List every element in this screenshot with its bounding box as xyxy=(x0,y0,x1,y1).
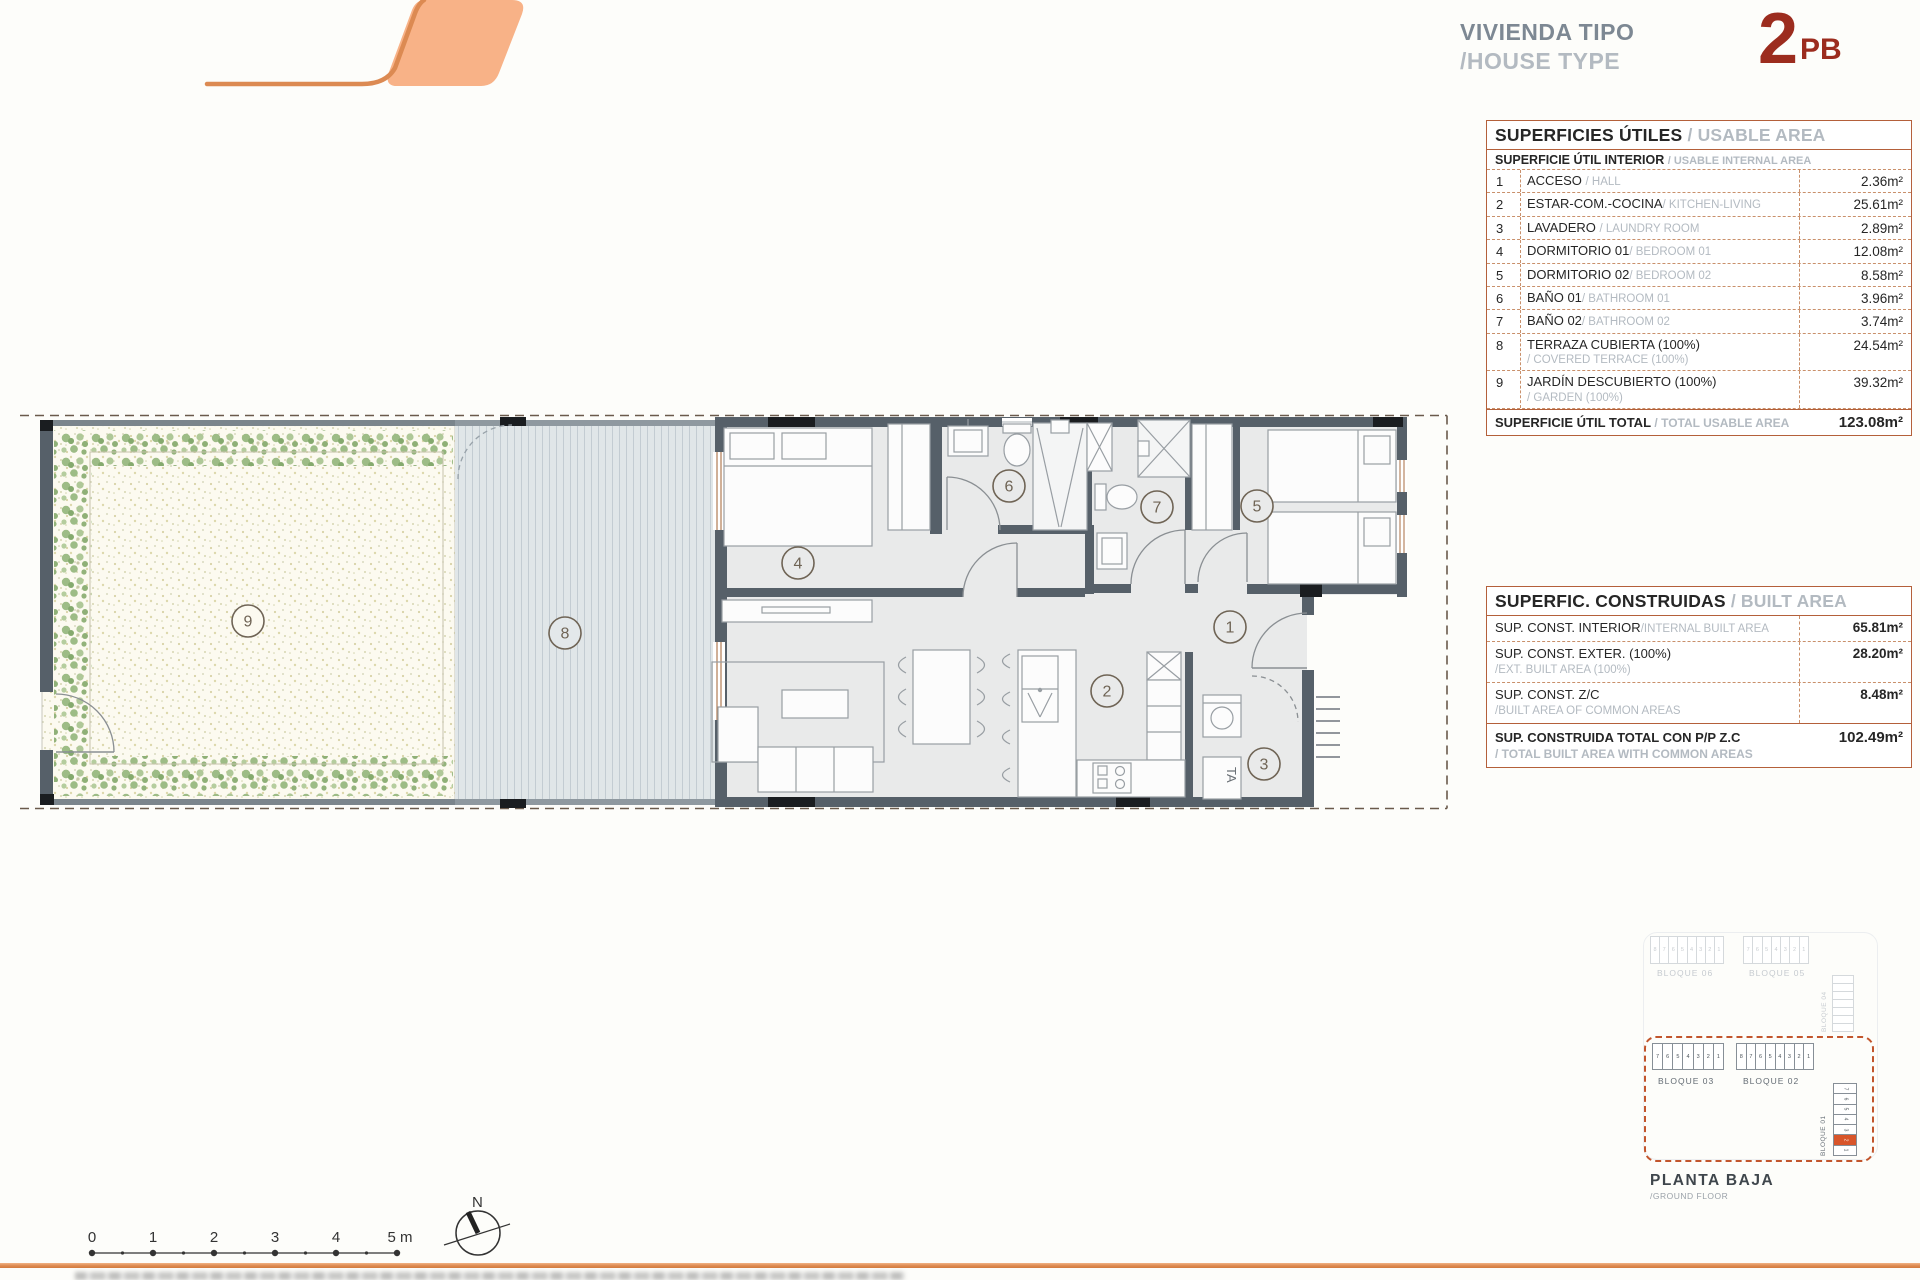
unit-cell: 4 xyxy=(1688,936,1697,964)
unit-cell: 1 xyxy=(1804,1043,1814,1070)
toilet-bath2 xyxy=(1095,484,1106,510)
unit-cell: 3 xyxy=(1697,936,1706,964)
unit-cell xyxy=(1832,1016,1854,1024)
block-05-label: BLOQUE 05 xyxy=(1749,968,1805,978)
floor-label: PLANTA BAJA xyxy=(1650,1172,1774,1190)
unit-cell: 8 xyxy=(1650,936,1660,964)
unit-cell: 2 xyxy=(1706,936,1715,964)
unit-cell xyxy=(1832,975,1854,984)
block-05-units: 7654321 xyxy=(1743,936,1809,964)
unit-cell: 6 xyxy=(1663,1043,1673,1070)
unit-cell: 1 xyxy=(1714,1043,1724,1070)
room-circle-4: 4 xyxy=(782,547,814,579)
kitchen-counter xyxy=(1147,680,1181,760)
unit-cell: 2 xyxy=(1704,1043,1714,1070)
north-label: N xyxy=(472,1194,483,1211)
svg-text:2: 2 xyxy=(1103,684,1112,701)
svg-text:9: 9 xyxy=(244,614,253,631)
coffee-table xyxy=(782,690,848,718)
unit-cell: 5 xyxy=(1673,1043,1683,1070)
scale-bar: 0 1 2 3 4 5 m xyxy=(88,1229,413,1256)
unit-cell: 4 xyxy=(1833,1115,1857,1125)
closet xyxy=(1192,424,1232,530)
washing-machine xyxy=(1203,695,1241,737)
unit-cell: 3 xyxy=(1785,1043,1795,1070)
room-circle-7: 7 xyxy=(1141,491,1173,523)
room-circle-5: 5 xyxy=(1241,490,1273,522)
sofa-chaise xyxy=(718,707,758,762)
room-circle-3: 3 xyxy=(1248,748,1280,780)
svg-text:8: 8 xyxy=(561,626,570,643)
unit-cell: 5 xyxy=(1678,936,1687,964)
terrace xyxy=(455,417,717,808)
unit-cell: 7 xyxy=(1660,936,1669,964)
room-circle-9: 9 xyxy=(232,605,264,637)
unit-cell: 6 xyxy=(1669,936,1678,964)
plant-border-bottom xyxy=(58,756,453,796)
site-location-diagram: 87654321 BLOQUE 06 7654321 BLOQUE 05 BLO… xyxy=(1643,930,1883,1210)
room-circle-2: 2 xyxy=(1091,675,1123,707)
footer-fine-print xyxy=(75,1272,905,1280)
block-04-units xyxy=(1832,975,1854,1032)
toilet-bath1 xyxy=(1003,424,1031,433)
block-03-label: BLOQUE 03 xyxy=(1658,1076,1714,1086)
svg-text:1: 1 xyxy=(149,1229,157,1246)
unit-cell: 2 xyxy=(1833,1135,1857,1145)
block-02-label: BLOQUE 02 xyxy=(1743,1076,1799,1086)
unit-cell: 3 xyxy=(1833,1125,1857,1135)
plant-border-top xyxy=(58,430,453,466)
unit-cell: 5 xyxy=(1833,1105,1857,1115)
floor-plan: TA 9 8 4 6 7 5 1 2 3 0 1 2 3 4 5 m xyxy=(0,0,1920,1280)
plan-sheet: VIVIENDA TIPO /HOUSE TYPE 2 PB SUPERFICI… xyxy=(0,0,1920,1280)
unit-cell: 4 xyxy=(1776,1043,1786,1070)
unit-cell: 1 xyxy=(1715,936,1724,964)
unit-cell: 7 xyxy=(1743,936,1753,964)
unit-cell: 7 xyxy=(1747,1043,1757,1070)
block-06-label: BLOQUE 06 xyxy=(1657,968,1713,978)
unit-cell: 6 xyxy=(1753,936,1762,964)
svg-text:6: 6 xyxy=(1005,479,1014,496)
entrance-steps xyxy=(1316,697,1340,757)
unit-cell: 6 xyxy=(1756,1043,1766,1070)
unit-cell: 4 xyxy=(1772,936,1781,964)
unit-cell xyxy=(1832,1008,1854,1016)
unit-cell: 2 xyxy=(1790,936,1799,964)
wardrobe xyxy=(888,424,930,530)
block-02-units: 87654321 xyxy=(1736,1043,1814,1070)
dining-table xyxy=(913,650,970,744)
unit-cell: 5 xyxy=(1766,1043,1776,1070)
unit-cell xyxy=(1832,1000,1854,1008)
unit-cell xyxy=(1832,992,1854,1000)
svg-text:5 m: 5 m xyxy=(387,1229,412,1246)
block-06-units: 87654321 xyxy=(1650,936,1724,964)
north-compass-icon: N xyxy=(444,1194,510,1255)
svg-text:5: 5 xyxy=(1253,499,1262,516)
floor-label-en: /GROUND FLOOR xyxy=(1650,1191,1728,1201)
svg-text:2: 2 xyxy=(210,1229,218,1246)
unit-cell: 5 xyxy=(1763,936,1772,964)
svg-text:7: 7 xyxy=(1153,500,1162,517)
unit-cell: 6 xyxy=(1833,1094,1857,1104)
unit-cell: 2 xyxy=(1795,1043,1805,1070)
room-circle-6: 6 xyxy=(993,470,1025,502)
svg-text:1: 1 xyxy=(1226,620,1235,637)
plant-border-left xyxy=(54,430,92,782)
block-03-units: 7654321 xyxy=(1652,1043,1724,1070)
unit-cell: 3 xyxy=(1781,936,1790,964)
unit-cell: 1 xyxy=(1800,936,1809,964)
unit-cell: 8 xyxy=(1736,1043,1747,1070)
unit-cell: 3 xyxy=(1694,1043,1704,1070)
footer-rule xyxy=(0,1263,1920,1268)
block-04-label: BLOQUE 04 xyxy=(1821,975,1828,1032)
shower-bath1 xyxy=(1033,423,1087,530)
unit-cell: 7 xyxy=(1652,1043,1663,1070)
unit-cell: 4 xyxy=(1683,1043,1693,1070)
svg-text:4: 4 xyxy=(332,1229,340,1246)
unit-cell: 7 xyxy=(1833,1083,1857,1094)
svg-text:4: 4 xyxy=(794,556,803,573)
room-circle-1: 1 xyxy=(1214,611,1246,643)
block-01-units: 7654321 xyxy=(1833,1083,1857,1156)
unit-cell xyxy=(1832,1024,1854,1032)
unit-cell xyxy=(1832,984,1854,992)
unit-cell: 1 xyxy=(1833,1146,1857,1156)
svg-text:0: 0 xyxy=(88,1229,96,1246)
appliance-label: TA xyxy=(1224,767,1239,783)
sofa xyxy=(758,747,873,792)
room-circle-8: 8 xyxy=(549,617,581,649)
kitchen-island xyxy=(1018,650,1076,797)
block-01-label: BLOQUE 01 xyxy=(1820,1083,1827,1156)
svg-text:3: 3 xyxy=(1260,757,1269,774)
svg-text:3: 3 xyxy=(271,1229,279,1246)
